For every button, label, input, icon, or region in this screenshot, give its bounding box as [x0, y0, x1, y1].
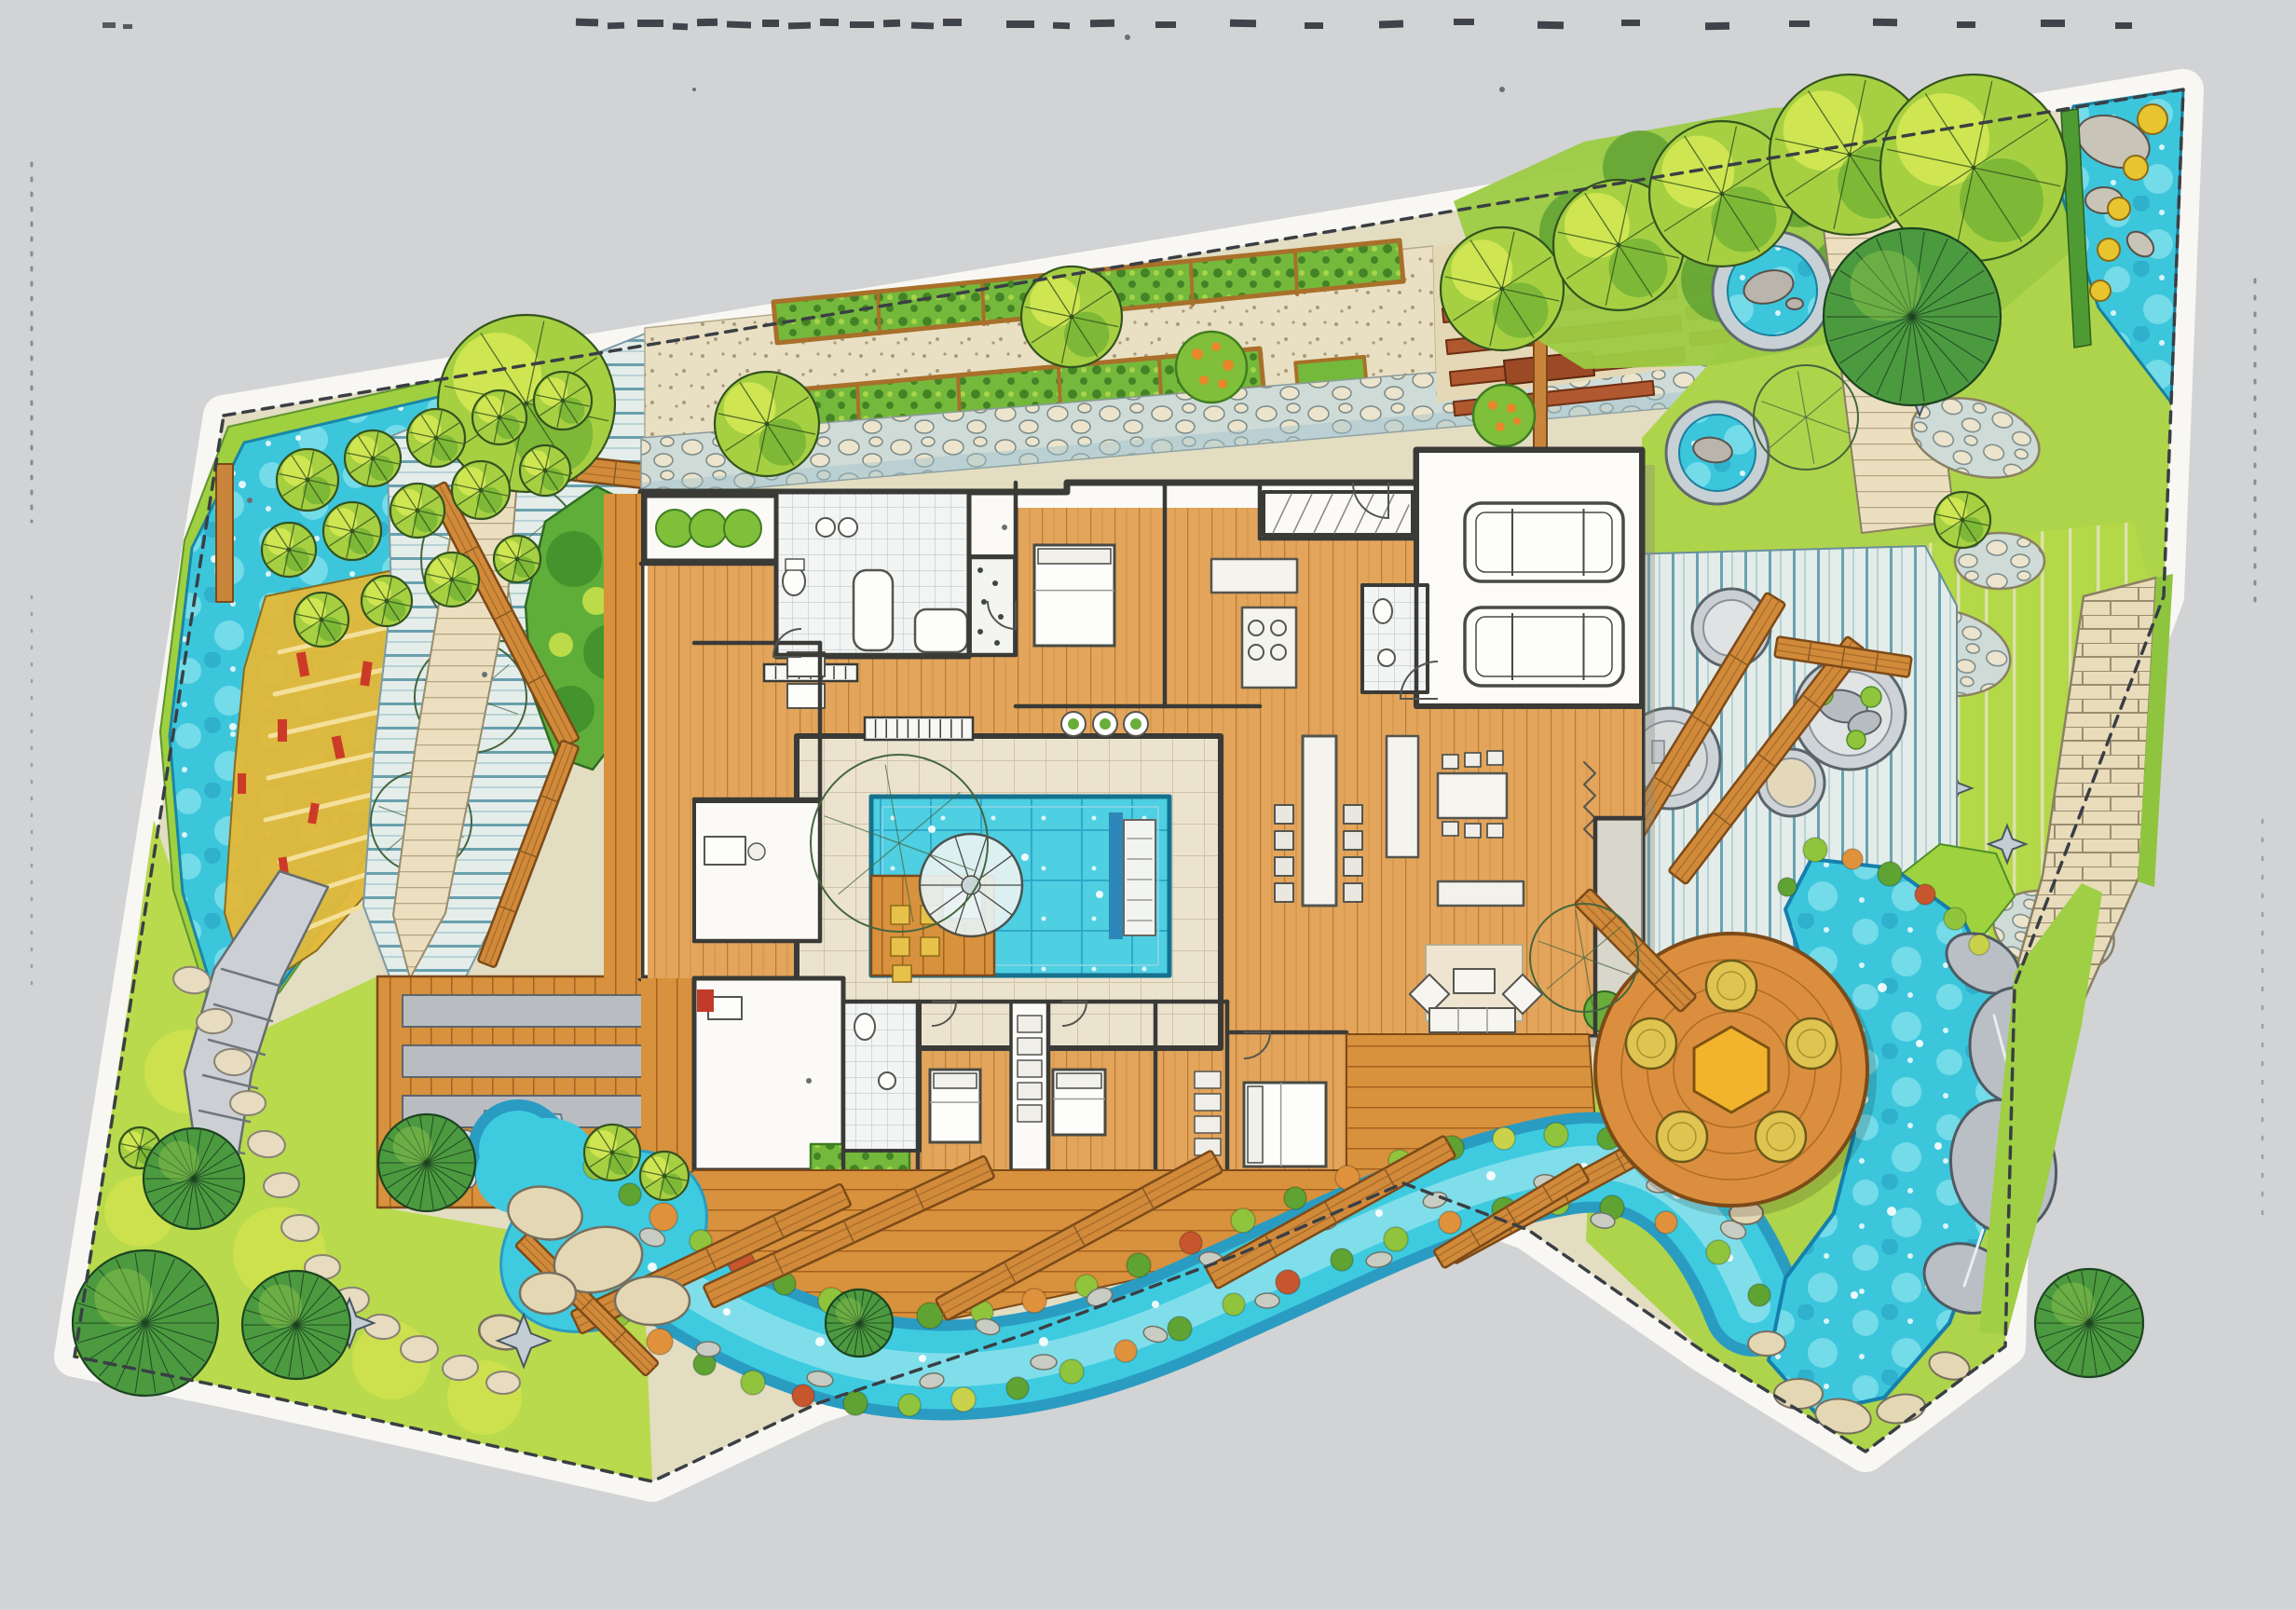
toilet — [854, 1014, 875, 1040]
fan-palm — [2035, 1269, 2143, 1377]
desk-chair — [748, 843, 765, 860]
sink — [879, 1072, 895, 1089]
fan-palm — [73, 1250, 218, 1396]
site-plan-drawing — [0, 0, 2296, 1610]
coffee-table — [1454, 969, 1495, 993]
pool-lounger-mat — [1109, 812, 1123, 939]
small-tree — [1934, 492, 1990, 548]
fan-palm — [143, 1128, 244, 1229]
water-garden-tree — [262, 523, 316, 577]
water-garden-tree — [520, 445, 570, 496]
canopy-tree — [715, 372, 819, 476]
small-tree — [640, 1152, 689, 1200]
car — [1465, 607, 1623, 686]
top-margin-marks — [576, 19, 2132, 31]
canopy-tree — [1441, 227, 1564, 350]
water-garden-tree — [494, 536, 540, 582]
toilet — [1373, 599, 1392, 623]
water-garden-tree — [472, 390, 526, 444]
desk — [704, 837, 745, 865]
corner-marks — [102, 22, 132, 29]
water-garden-tree — [277, 449, 338, 511]
toilet — [783, 567, 805, 595]
courtyard-rail — [865, 717, 973, 740]
bed-south-3 — [1244, 1083, 1326, 1167]
pool-lounger — [1124, 820, 1155, 935]
bed-north — [1034, 545, 1114, 646]
walkway-west — [604, 494, 641, 978]
sofa — [1429, 1008, 1515, 1032]
entry-shrubs — [656, 510, 761, 547]
water-garden-tree — [534, 372, 592, 430]
walkway-west — [641, 978, 694, 1174]
bathtub — [854, 570, 893, 650]
fruit-tree — [1176, 332, 1247, 402]
water-garden-tree — [452, 461, 510, 519]
water-garden-tree — [294, 593, 348, 647]
plan-root — [32, 19, 2262, 1481]
water-garden-tree — [345, 430, 401, 486]
small-tree — [584, 1125, 640, 1180]
kitchen-cabinet — [1211, 559, 1297, 593]
boundary-post — [216, 464, 233, 602]
wardrobe — [1264, 492, 1413, 535]
bed-south-2 — [1053, 1070, 1105, 1135]
shelf-boxes — [1018, 1016, 1042, 1122]
dining-table — [1438, 773, 1507, 818]
kitchen-island — [1303, 736, 1336, 906]
study-room — [694, 801, 820, 941]
water-garden-tree — [425, 553, 479, 607]
fruit-tree — [1473, 385, 1535, 446]
water-garden-tree — [407, 409, 465, 467]
site-plan-stage — [0, 0, 2296, 1610]
water-garden-tree — [323, 502, 381, 560]
sideboard — [1438, 881, 1524, 906]
bathtub — [915, 609, 967, 652]
car — [1465, 503, 1623, 581]
sw-red-door — [697, 989, 714, 1012]
water-garden-tree — [362, 576, 412, 626]
water-garden-tree — [390, 484, 444, 538]
bed-south-1 — [930, 1070, 980, 1142]
fan-palm — [378, 1114, 475, 1211]
sink — [1378, 649, 1395, 666]
entry-pebble-floor — [971, 555, 1014, 654]
fan-palm — [826, 1289, 893, 1357]
pantry-cabinet — [1387, 736, 1418, 857]
fan-palm — [1824, 228, 2001, 405]
spiral-stair — [920, 834, 1022, 936]
toilet-tank — [786, 559, 804, 570]
fan-palm — [242, 1271, 350, 1379]
